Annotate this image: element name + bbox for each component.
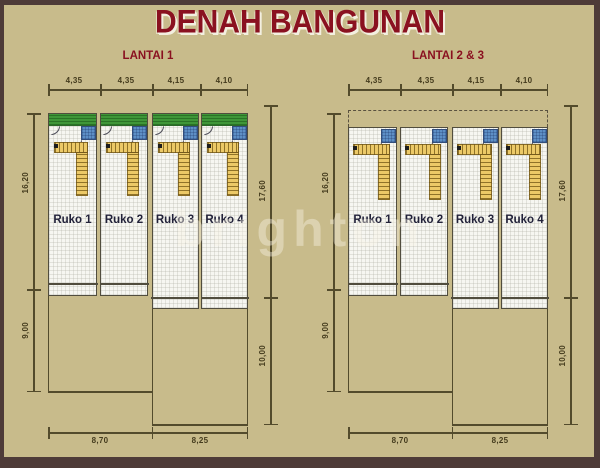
unit-ruko-4: Ruko 4 (501, 127, 548, 309)
page-title: DENAH BANGUNAN (0, 5, 600, 42)
dim-bottom-2: 8,25 (452, 436, 548, 445)
door-swing-icon (155, 126, 164, 135)
stair-start-marker (207, 144, 211, 148)
staircase-run (178, 152, 190, 196)
back-wall (201, 297, 249, 299)
staircase-run (76, 152, 88, 196)
unit-ruko-4: Ruko 4 (201, 113, 248, 309)
back-wall (100, 283, 149, 285)
stair-start-marker (506, 146, 510, 150)
dim-bottom-1: 8,70 (348, 436, 452, 445)
garden-strip (202, 114, 247, 126)
staircase-run (529, 154, 541, 200)
bathroom-tile-area (81, 126, 96, 140)
bathroom-tile-area (432, 129, 447, 143)
floor-label-lantai-2-3: LANTAI 2 & 3 (348, 50, 548, 62)
back-wall (400, 283, 449, 285)
dim-top-1: 4,35 (348, 76, 400, 85)
unit-label: Ruko 4 (202, 214, 247, 227)
dim-left-1: 16,20 (321, 172, 330, 194)
unit-label: Ruko 3 (453, 214, 498, 227)
stair-start-marker (106, 144, 110, 148)
door-swing-icon (103, 126, 112, 135)
bathroom-tile-area (132, 126, 147, 140)
back-wall (151, 297, 199, 299)
unit-ruko-3: Ruko 3 (152, 113, 199, 309)
unit-ruko-3: Ruko 3 (452, 127, 499, 309)
back-wall (348, 283, 398, 285)
stair-start-marker (353, 146, 357, 150)
floor-label-lantai-1: LANTAI 1 (48, 50, 248, 62)
dim-top-2: 4,35 (100, 76, 152, 85)
staircase-run (429, 154, 441, 200)
dim-right-2: 10,00 (258, 345, 267, 367)
stair-start-marker (405, 146, 409, 150)
staircase-run (480, 154, 492, 200)
dim-left-1: 16,20 (21, 172, 30, 194)
bathroom-tile-area (532, 129, 547, 143)
dim-bottom-2: 8,25 (152, 436, 248, 445)
stair-start-marker (54, 144, 58, 148)
stair-start-marker (457, 146, 461, 150)
garden-strip (101, 114, 147, 126)
dim-right-2: 10,00 (558, 345, 567, 367)
stair-start-marker (158, 144, 162, 148)
dim-top-4: 4,10 (500, 76, 548, 85)
door-swing-icon (51, 126, 60, 135)
floor-plan-sheet: DENAH BANGUNAN LANTAI 1 4,35 4,35 4,15 4… (0, 0, 600, 468)
bathroom-tile-area (483, 129, 498, 143)
dim-top-4: 4,10 (200, 76, 248, 85)
door-swing-icon (204, 126, 213, 135)
unit-label: Ruko 2 (101, 214, 147, 227)
back-wall (451, 297, 499, 299)
unit-ruko-2: Ruko 2 (400, 127, 448, 296)
dim-top-3: 4,15 (452, 76, 500, 85)
dim-right-1: 17,60 (558, 180, 567, 202)
dim-left-2: 9,00 (321, 322, 330, 339)
bathroom-tile-area (232, 126, 247, 140)
dim-top-2: 4,35 (400, 76, 452, 85)
garden-strip (153, 114, 198, 126)
staircase-run (127, 152, 139, 196)
unit-label: Ruko 2 (401, 214, 447, 227)
back-wall (48, 283, 98, 285)
dim-bottom-1: 8,70 (48, 436, 152, 445)
garden-strip (49, 114, 96, 126)
bathroom-tile-area (381, 129, 396, 143)
unit-label: Ruko 3 (153, 214, 198, 227)
dim-top-3: 4,15 (152, 76, 200, 85)
unit-ruko-1: Ruko 1 (348, 127, 397, 296)
bathroom-tile-area (183, 126, 198, 140)
dim-left-2: 9,00 (21, 322, 30, 339)
unit-ruko-1: Ruko 1 (48, 113, 97, 296)
dim-right-1: 17,60 (258, 180, 267, 202)
dim-top-1: 4,35 (48, 76, 100, 85)
unit-ruko-2: Ruko 2 (100, 113, 148, 296)
back-wall (501, 297, 549, 299)
staircase-run (378, 154, 390, 200)
unit-label: Ruko 4 (502, 214, 547, 227)
staircase-run (227, 152, 239, 196)
unit-label: Ruko 1 (49, 214, 96, 227)
unit-label: Ruko 1 (349, 214, 396, 227)
